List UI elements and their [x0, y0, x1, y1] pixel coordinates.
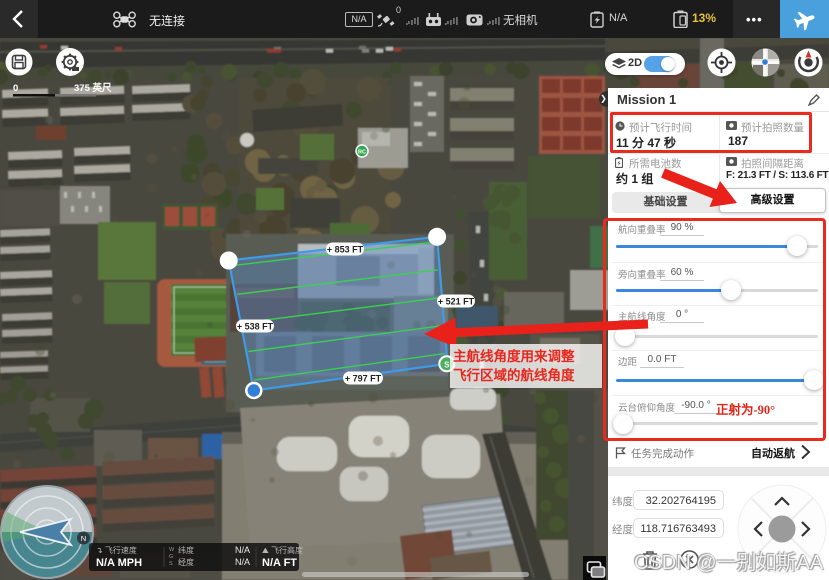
svg-text:经度: 经度: [178, 557, 194, 567]
svg-text:↴ 飞行速度: ↴ 飞行速度: [96, 545, 137, 555]
svg-text:+ 797 FT: + 797 FT: [345, 374, 382, 384]
svg-text:纬度: 纬度: [178, 545, 194, 555]
svg-text:G: G: [169, 554, 173, 560]
svg-text:S: S: [169, 561, 173, 567]
svg-text:N/A: N/A: [235, 545, 250, 555]
svg-text:N: N: [81, 534, 86, 543]
svg-text:0: 0: [13, 83, 18, 94]
svg-text:W: W: [169, 547, 175, 553]
svg-text:N/A FT: N/A FT: [262, 557, 297, 569]
svg-text:+ 521 FT: + 521 FT: [438, 297, 475, 307]
svg-text:+ 853 FT: + 853 FT: [327, 245, 364, 255]
svg-text:N/A: N/A: [235, 557, 250, 567]
svg-text:375 英尺: 375 英尺: [74, 82, 112, 94]
svg-text:RC: RC: [358, 150, 366, 156]
svg-text:⛰ 飞行高度: ⛰ 飞行高度: [262, 545, 303, 555]
svg-text:N/A MPH: N/A MPH: [96, 557, 142, 569]
svg-text:+ 538 FT: + 538 FT: [237, 322, 274, 332]
